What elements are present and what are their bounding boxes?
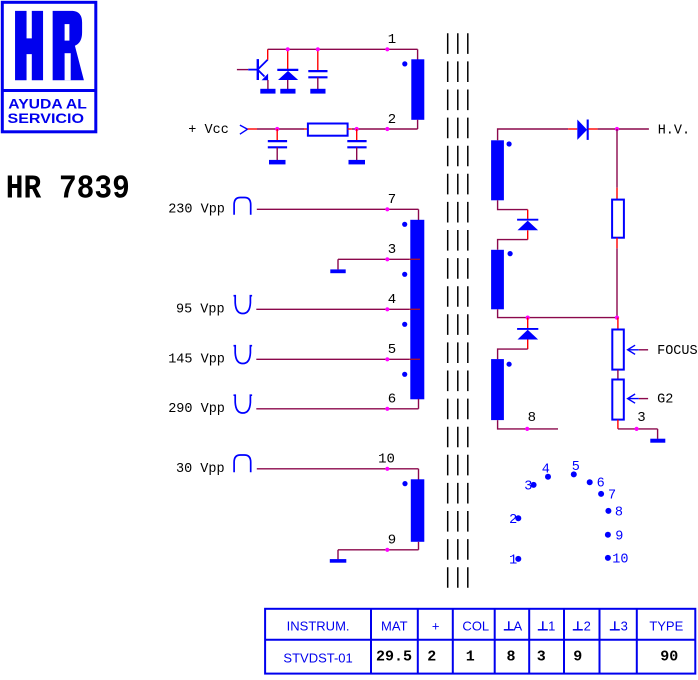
svg-text:2: 2 [509,513,517,528]
svg-text:2: 2 [427,649,436,666]
svg-text:5: 5 [388,342,396,358]
svg-text:COL: COL [462,618,489,633]
svg-text:8: 8 [528,410,536,426]
svg-text:INSTRUM.: INSTRUM. [287,618,350,633]
svg-text:1: 1 [388,32,396,48]
svg-text:7: 7 [608,489,616,504]
svg-text:3: 3 [537,649,546,666]
svg-text:6: 6 [388,391,396,407]
svg-text:7: 7 [388,192,396,208]
svg-text:145 Vpp: 145 Vpp [168,353,225,368]
svg-text:3: 3 [524,480,532,495]
svg-text:3: 3 [621,618,628,633]
svg-text:MAT: MAT [381,618,408,633]
svg-text:2: 2 [388,112,396,128]
svg-text:5: 5 [572,460,580,475]
svg-text:1: 1 [509,554,517,569]
svg-text:95 Vpp: 95 Vpp [176,303,225,318]
svg-text:1: 1 [466,649,475,666]
svg-text:6: 6 [597,477,605,492]
svg-text:9: 9 [573,649,582,666]
svg-text:+: + [432,618,440,633]
svg-text:30 Vpp: 30 Vpp [176,462,225,477]
svg-text:3: 3 [637,410,645,426]
svg-text:+ Vcc: + Vcc [188,123,229,138]
svg-text:4: 4 [542,462,550,477]
svg-text:29.5: 29.5 [376,649,412,666]
svg-text:A: A [513,618,522,633]
svg-text:3: 3 [388,242,396,258]
svg-text:9: 9 [388,532,396,548]
svg-text:STVDST-01: STVDST-01 [283,650,352,665]
svg-text:4: 4 [388,292,396,308]
svg-text:AYUDA AL: AYUDA AL [8,97,87,112]
svg-text:1: 1 [548,618,555,633]
svg-text:G2: G2 [657,393,673,408]
svg-text:SERVICIO: SERVICIO [8,111,85,126]
svg-text:TYPE: TYPE [649,618,683,633]
svg-text:90: 90 [660,649,678,666]
svg-text:H.V.: H.V. [658,124,690,139]
svg-text:FOCUS: FOCUS [657,344,698,359]
svg-text:9: 9 [615,530,623,545]
svg-text:HR 7839: HR 7839 [6,171,130,208]
svg-text:8: 8 [506,649,515,666]
svg-text:10: 10 [612,553,628,568]
svg-text:8: 8 [615,506,623,521]
svg-text:290 Vpp: 290 Vpp [168,402,225,417]
svg-text:2: 2 [584,618,591,633]
svg-text:10: 10 [378,451,395,467]
svg-text:230 Vpp: 230 Vpp [168,203,225,218]
